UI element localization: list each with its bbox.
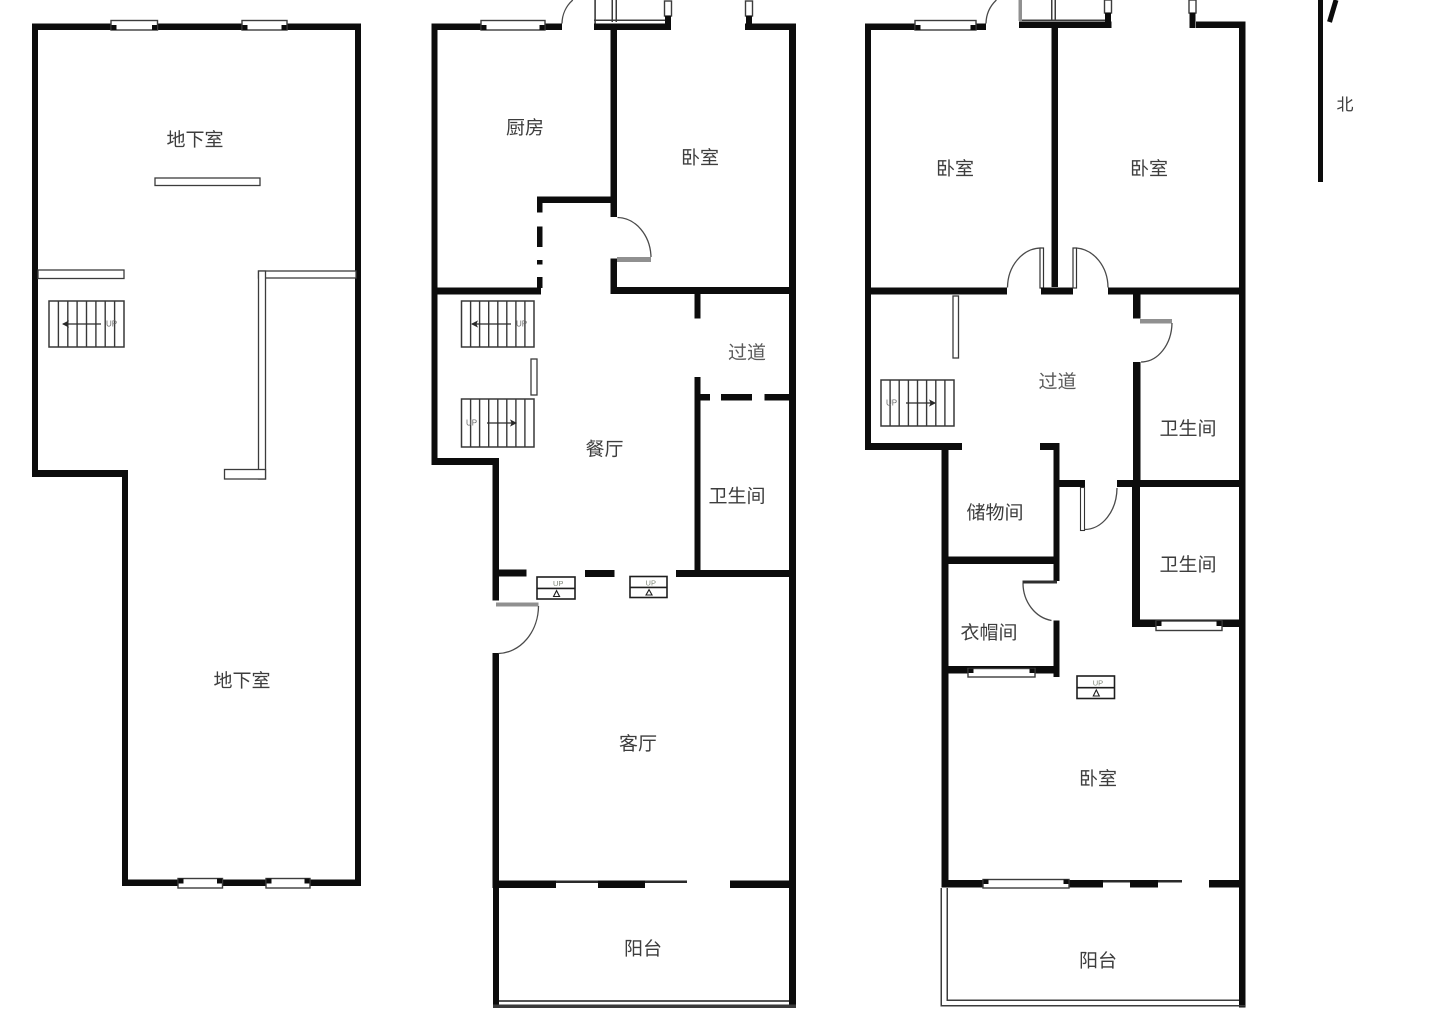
svg-text:UP: UP bbox=[106, 320, 117, 329]
svg-text:UP: UP bbox=[646, 578, 656, 587]
svg-text:UP: UP bbox=[466, 419, 477, 428]
svg-text:UP: UP bbox=[886, 399, 897, 408]
svg-text:UP: UP bbox=[1093, 678, 1103, 687]
svg-text:UP: UP bbox=[516, 320, 527, 329]
svg-text:UP: UP bbox=[553, 579, 563, 588]
